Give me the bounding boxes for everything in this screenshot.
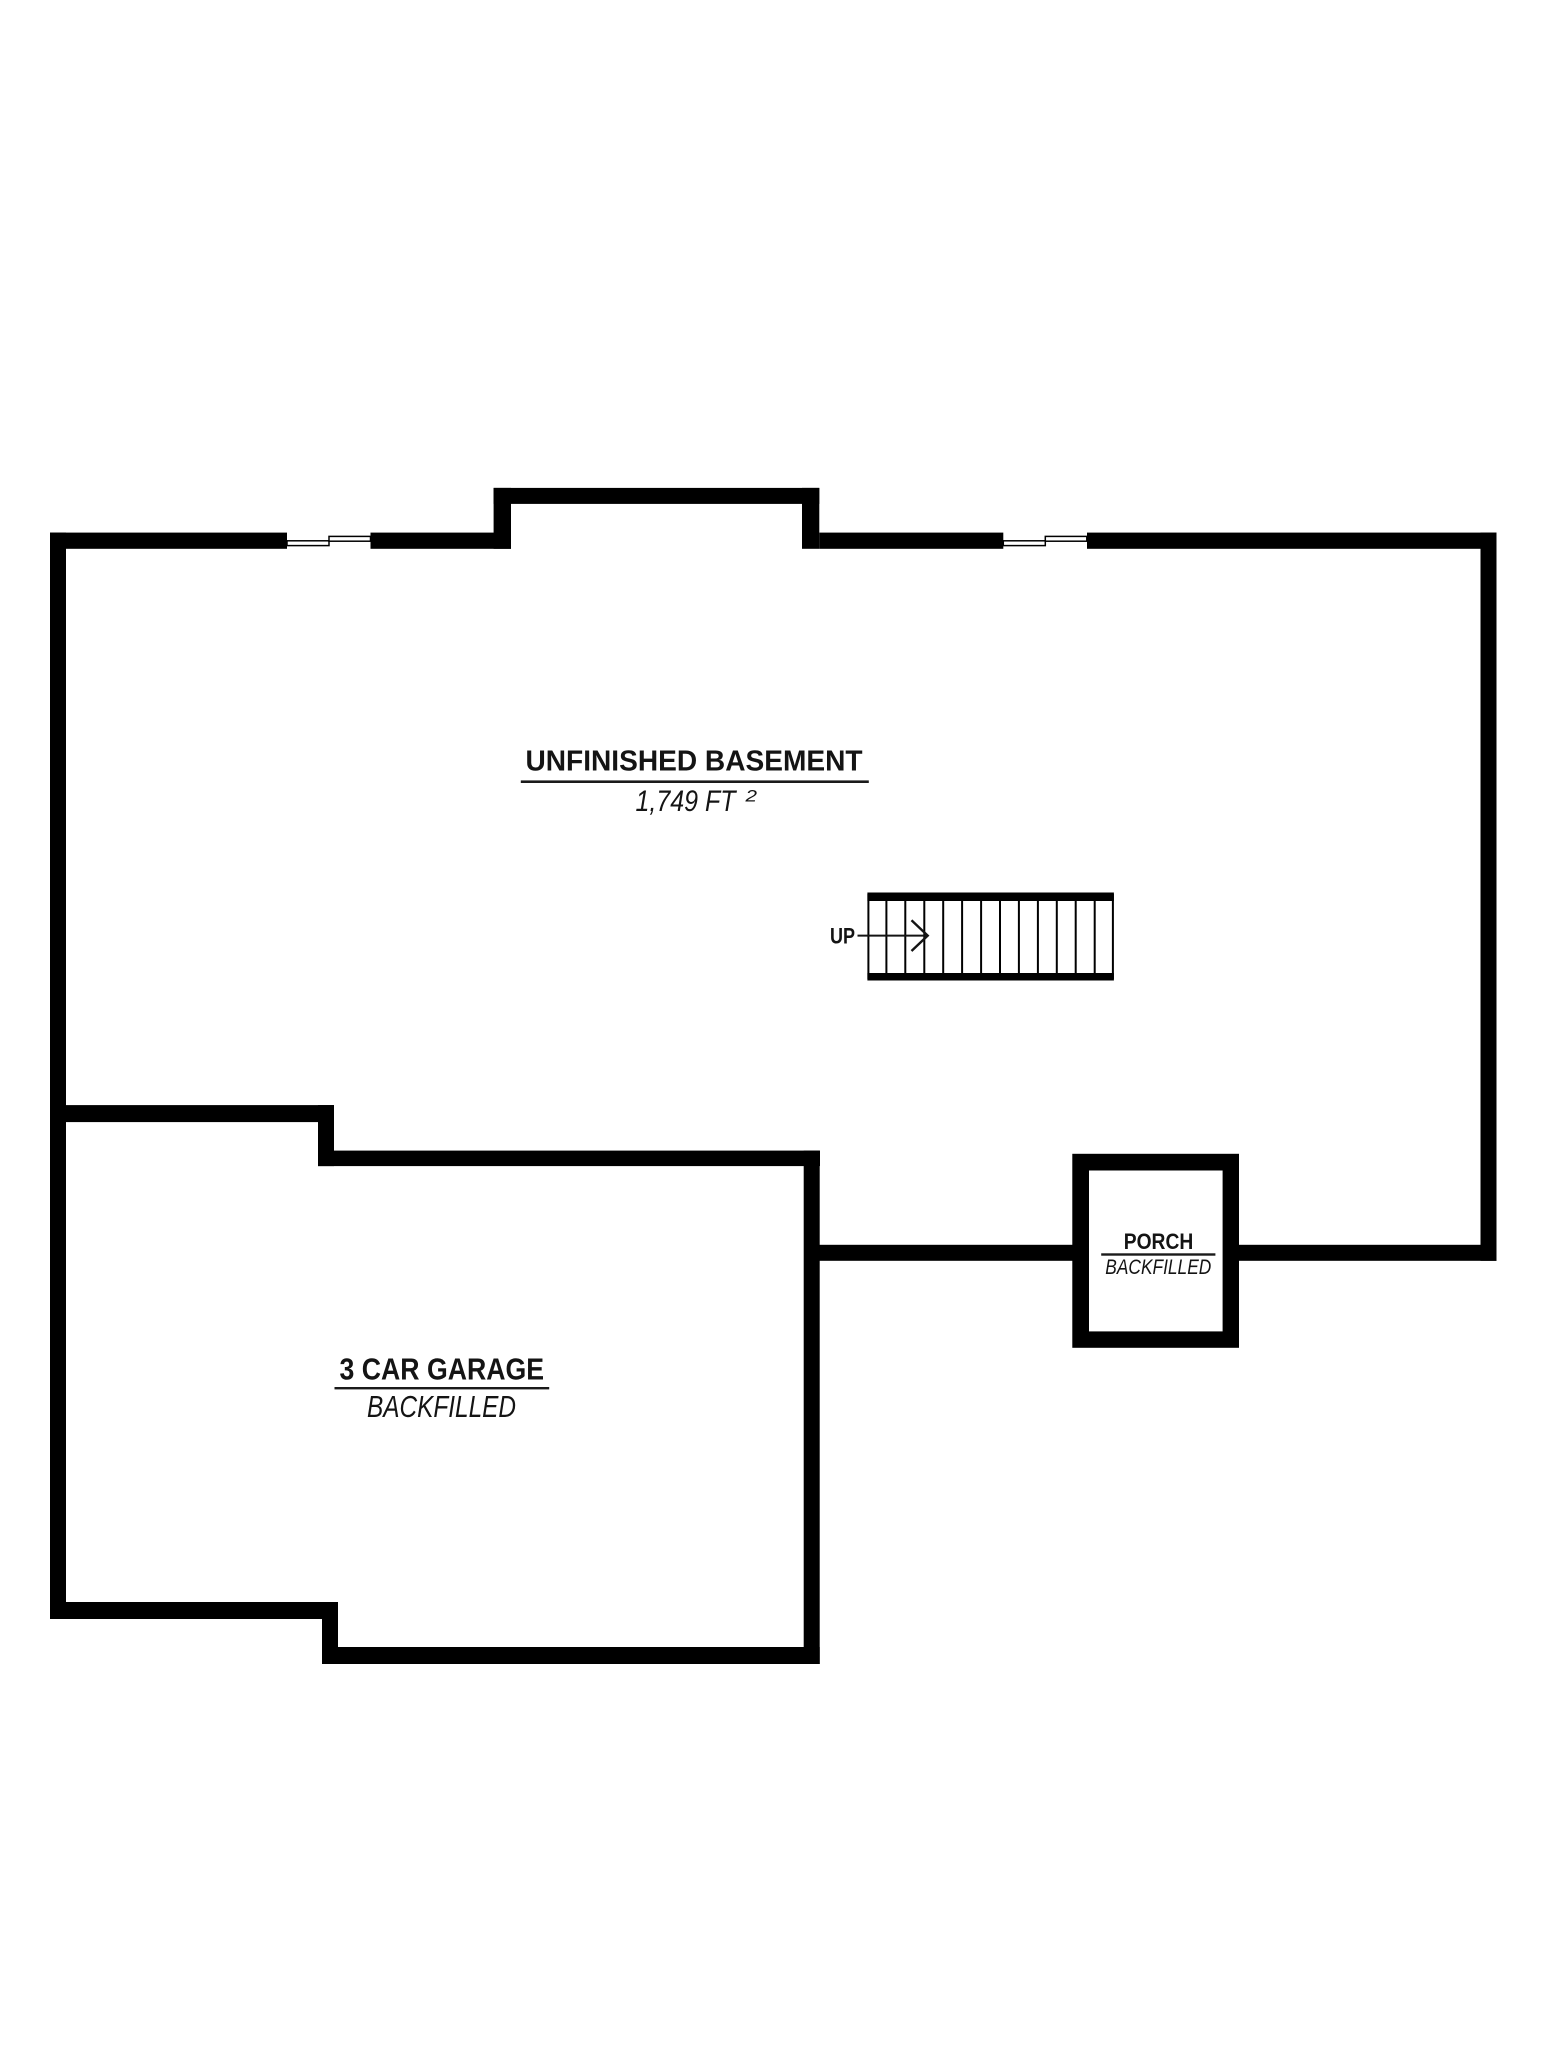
svg-text:2: 2 xyxy=(744,788,757,806)
svg-text:PORCH: PORCH xyxy=(1124,1229,1194,1254)
svg-text:1,749 FT: 1,749 FT xyxy=(636,785,738,818)
svg-text:BACKFILLED: BACKFILLED xyxy=(1105,1256,1211,1279)
svg-text:3 CAR GARAGE: 3 CAR GARAGE xyxy=(340,1352,545,1387)
svg-text:BACKFILLED: BACKFILLED xyxy=(367,1389,516,1424)
svg-text:UP: UP xyxy=(830,924,855,949)
svg-text:UNFINISHED BASEMENT: UNFINISHED BASEMENT xyxy=(526,746,863,778)
